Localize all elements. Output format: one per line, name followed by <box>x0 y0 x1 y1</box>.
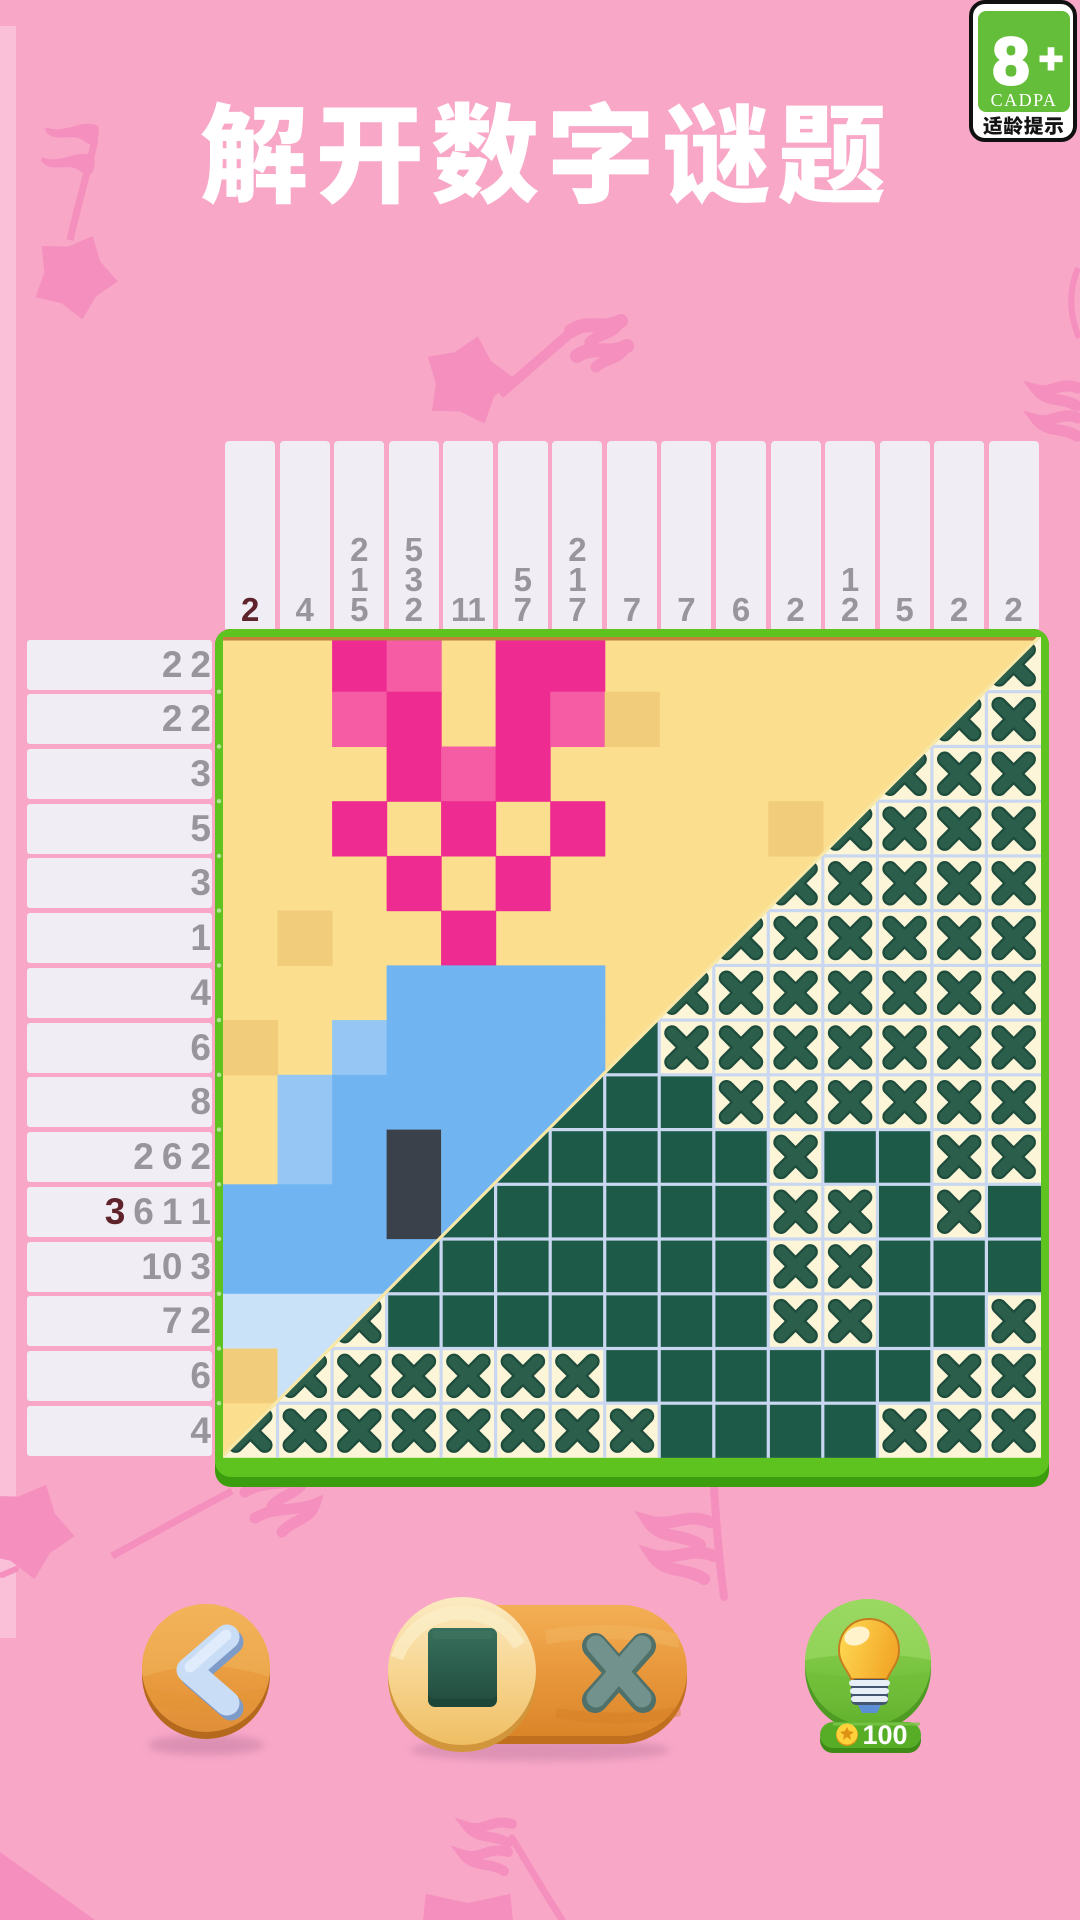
svg-text:100: 100 <box>862 1720 907 1750</box>
